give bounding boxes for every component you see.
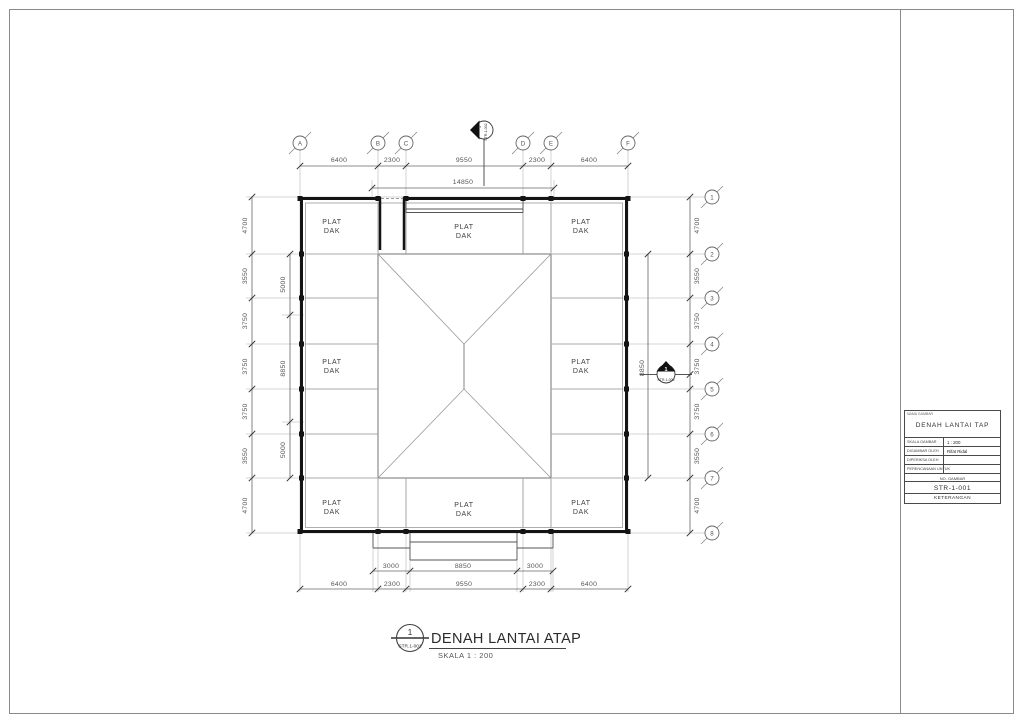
checked-by-label: DIPERIKSA OLEH: [905, 456, 944, 464]
dim-top-overall: 14850: [453, 179, 473, 186]
title-block-row-drawn-by: DIGAMBAR OLEH Rifat Ridal: [905, 446, 1000, 455]
dim-bottom-inner-0: 3000: [383, 563, 399, 570]
grid-col-b: B: [376, 141, 380, 148]
plat-dak-middle-right: PLATDAK: [571, 359, 591, 375]
dim-left-outer-0: 4700: [242, 217, 249, 233]
drawing-caption: 1 STR.1-001 DENAH LANTAI ATAP SKALA 1 : …: [391, 625, 581, 661]
hip-roof: [378, 254, 551, 478]
title-block-drawing-name: DENAH LANTAI TAP: [905, 422, 1000, 429]
caption-scale: SKALA 1 : 200: [438, 651, 493, 660]
title-block-row-planned-for: PERENCANAAN UNTUK: [905, 464, 1000, 473]
dim-top-outer-ef: 6400: [581, 157, 597, 164]
title-block-number-label: NO. GAMBAR: [905, 473, 1000, 481]
dim-left-outer-5: 3550: [242, 448, 249, 464]
drawn-by-value: Rifat Ridal: [944, 447, 1000, 455]
caption-title: DENAH LANTAI ATAP: [431, 631, 581, 647]
drawn-by-label: DIGAMBAR OLEH: [905, 447, 944, 455]
drawing-sheet: 6400 2300 9550 2300 6400 14850 4700 3550…: [0, 0, 1024, 724]
scale-value: 1 : 200: [944, 438, 1000, 446]
dim-right-outer-2: 3750: [694, 313, 701, 329]
dim-left-outer-6: 4700: [242, 497, 249, 513]
dim-bottom-inner-2: 3000: [527, 563, 543, 570]
grid-row-1: 1: [710, 195, 714, 202]
dim-left-outer-4: 3750: [242, 403, 249, 419]
grid-col-e: E: [549, 141, 553, 148]
grid-bubbles-columns: A B C D E F: [289, 132, 639, 154]
title-block-row-scale: SKALA GAMBAR 1 : 200: [905, 437, 1000, 446]
title-block-drawing-number: STR-1-001: [905, 481, 1000, 493]
dim-top-outer-bc: 2300: [384, 157, 400, 164]
plat-dak-top-left: PLATDAK: [322, 219, 342, 235]
section-marker-right-number: 1: [664, 367, 667, 373]
dim-bottom-inner-1: 8850: [455, 563, 471, 570]
section-marker-top-number: 1: [478, 126, 482, 128]
grid-bubbles-rows: 1 2 3 4 5 6 7 8: [701, 186, 723, 544]
dim-left-inner-2: 5000: [280, 442, 287, 458]
grid-row-2: 2: [710, 252, 714, 259]
title-block-notes-label: KETERANGAN: [905, 493, 1000, 503]
plat-dak-top-right: PLATDAK: [571, 219, 591, 235]
canopy-lines: [373, 533, 553, 560]
dim-right-outer-5: 3550: [694, 448, 701, 464]
dim-right-outer-4: 3750: [694, 403, 701, 419]
dim-top-outer-ab: 6400: [331, 157, 347, 164]
grid-col-f: F: [626, 141, 630, 148]
parapet-lines: [406, 200, 523, 213]
plat-dak-bottom-right: PLATDAK: [571, 500, 591, 516]
grid-row-3: 3: [710, 296, 714, 303]
scale-label: SKALA GAMBAR: [905, 438, 944, 446]
section-marker-right-sheet: STR.1-002: [657, 378, 674, 382]
planned-for-value: [944, 465, 1000, 473]
dim-bottom-outer-cd: 9550: [456, 581, 472, 588]
dim-right-outer-6: 4700: [694, 497, 701, 513]
grid-col-c: C: [404, 141, 409, 148]
grid-row-5: 5: [710, 387, 714, 394]
dim-right-inner: 8850: [639, 360, 646, 376]
section-marker-top: STR.1-002 1: [470, 121, 493, 187]
dim-left-inner-1: 8850: [280, 360, 287, 376]
dim-top-outer-cd: 9550: [456, 157, 472, 164]
plat-dak-middle-left: PLATDAK: [322, 359, 342, 375]
section-marker-top-sheet: STR.1-002: [484, 123, 488, 140]
grid-row-4: 4: [710, 342, 714, 349]
grid-row-7: 7: [710, 476, 714, 483]
dim-right-outer-1: 3550: [694, 268, 701, 284]
caption-detail-sheet: STR.1-001: [398, 644, 422, 650]
dim-left-outer-2: 3750: [242, 313, 249, 329]
planned-for-label: PERENCANAAN UNTUK: [905, 465, 944, 473]
dim-bottom-outer-bc: 2300: [384, 581, 400, 588]
title-block: NAMA GAMBAR DENAH LANTAI TAP SKALA GAMBA…: [904, 410, 1001, 504]
checked-by-value: [944, 456, 1000, 464]
plat-dak-top-center: PLATDAK: [454, 224, 474, 240]
dim-left-outer-1: 3550: [242, 268, 249, 284]
dim-right-outer-3: 3750: [694, 358, 701, 374]
dim-left-outer-3: 3750: [242, 358, 249, 374]
dim-bottom-outer-ab: 6400: [331, 581, 347, 588]
dim-top-outer-de: 2300: [529, 157, 545, 164]
dim-left-inner-0: 5000: [280, 276, 287, 292]
caption-detail-number: 1: [408, 627, 413, 637]
plat-dak-bottom-center: PLATDAK: [454, 502, 474, 518]
dim-bottom-outer-ef: 6400: [581, 581, 597, 588]
grid-row-6: 6: [710, 432, 714, 439]
dim-bottom-outer-de: 2300: [529, 581, 545, 588]
dim-right-outer-0: 4700: [694, 217, 701, 233]
grid-col-d: D: [521, 141, 526, 148]
title-block-name-label: NAMA GAMBAR: [907, 412, 933, 416]
title-block-row-checked-by: DIPERIKSA OLEH: [905, 455, 1000, 464]
floor-plan-drawing: 6400 2300 9550 2300 6400 14850 4700 3550…: [0, 0, 1024, 724]
title-block-name-row: NAMA GAMBAR DENAH LANTAI TAP: [905, 411, 1000, 437]
grid-row-8: 8: [710, 531, 714, 538]
plat-dak-bottom-left: PLATDAK: [322, 500, 342, 516]
